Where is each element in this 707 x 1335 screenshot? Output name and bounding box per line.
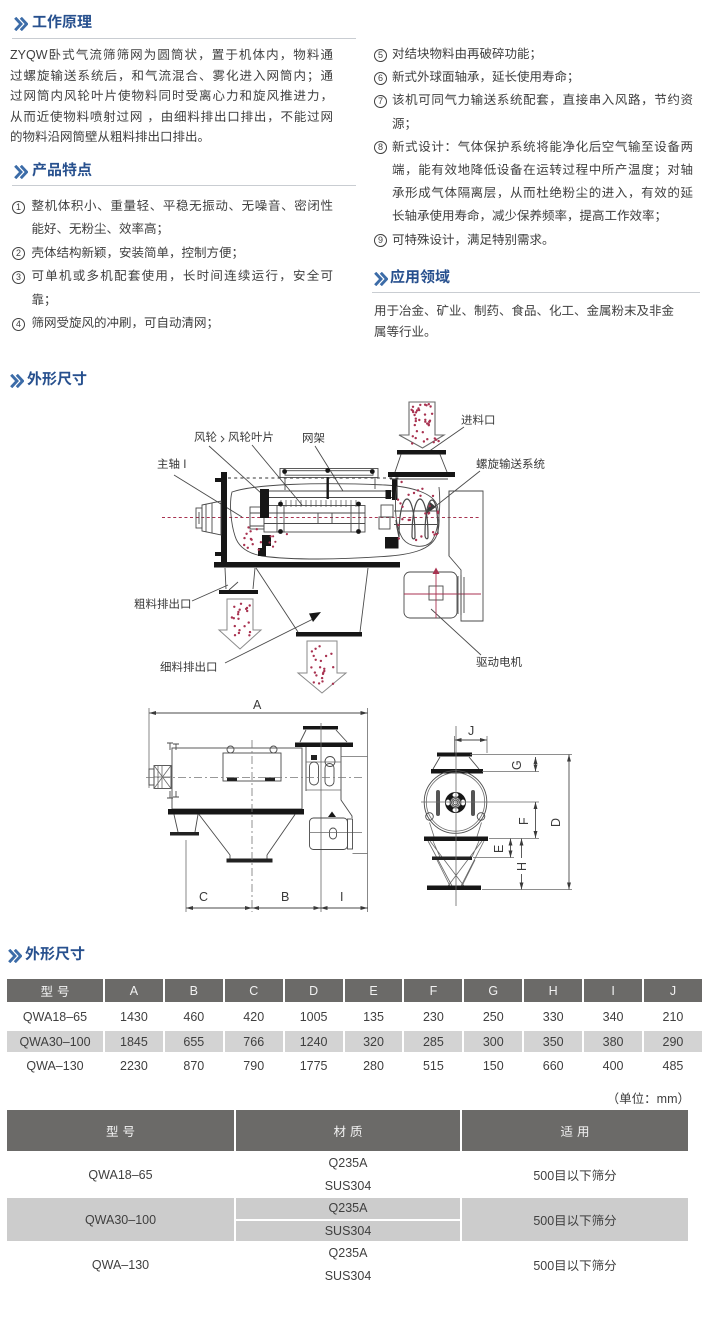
- svg-text:A: A: [253, 698, 262, 712]
- svg-text:风轮: 风轮: [194, 431, 217, 444]
- svg-text:B: B: [281, 890, 289, 904]
- svg-text:E: E: [492, 845, 506, 853]
- svg-text:J: J: [468, 724, 474, 738]
- svg-text:G: G: [510, 760, 524, 770]
- svg-text:H: H: [515, 862, 529, 871]
- svg-text:F: F: [517, 817, 531, 825]
- svg-text:C: C: [199, 890, 208, 904]
- svg-text:风轮叶片: 风轮叶片: [228, 431, 274, 444]
- svg-text:细料排出口: 细料排出口: [160, 661, 218, 674]
- svg-text:粗料排出口: 粗料排出口: [134, 598, 192, 611]
- svg-text:D: D: [549, 818, 563, 827]
- svg-text:网架: 网架: [302, 432, 325, 445]
- svg-text:螺旋输送系统: 螺旋输送系统: [476, 458, 545, 471]
- svg-text:I: I: [340, 890, 343, 904]
- svg-text:驱动电机: 驱动电机: [476, 656, 522, 669]
- svg-text:进料口: 进料口: [461, 414, 496, 427]
- svg-text:主轴 I: 主轴 I: [157, 458, 186, 471]
